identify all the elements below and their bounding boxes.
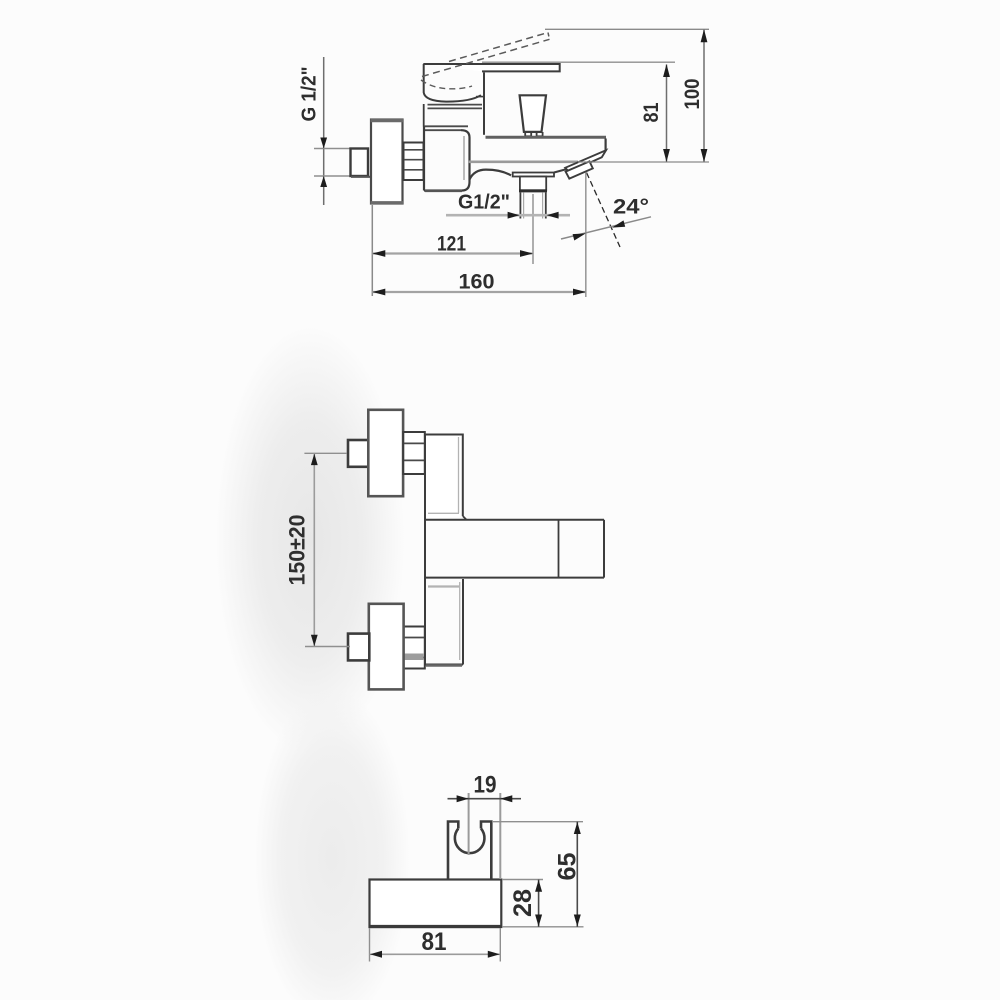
svg-text:81: 81 [422, 928, 447, 956]
svg-text:160: 160 [459, 271, 495, 294]
svg-text:65: 65 [554, 852, 582, 880]
svg-text:28: 28 [509, 889, 537, 917]
svg-text:150±20: 150±20 [285, 515, 310, 586]
svg-text:G 1/2": G 1/2" [299, 67, 321, 122]
svg-text:100: 100 [681, 79, 704, 110]
svg-text:19: 19 [474, 772, 497, 799]
svg-text:24°: 24° [613, 196, 649, 219]
svg-text:81: 81 [640, 102, 663, 122]
svg-text:G1/2": G1/2" [458, 192, 510, 214]
svg-text:121: 121 [437, 233, 466, 256]
